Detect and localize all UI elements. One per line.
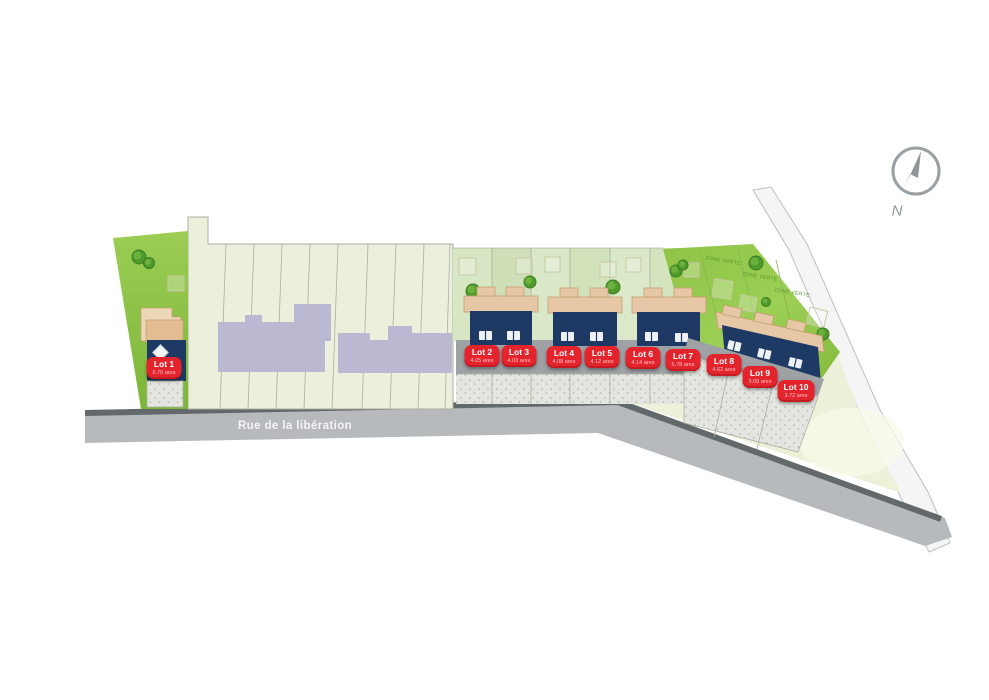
gravel-dots (147, 381, 183, 407)
house-pair-4-5 (548, 288, 622, 346)
house-pair-6-7 (632, 288, 706, 346)
lot-name: Lot 4 (553, 349, 576, 358)
lot-area: 4.14 ares (632, 360, 655, 367)
lot-area: 4.03 ares (508, 358, 531, 365)
tree-icon (749, 256, 763, 270)
lot-area: 4.62 ares (713, 367, 736, 374)
compass-needle-icon (904, 151, 921, 188)
existing-parcels (188, 217, 453, 409)
lot-area: 4.05 ares (471, 358, 494, 365)
lot-area: 4.08 ares (553, 359, 576, 366)
site-plan: Rue de la libération ZONE VERTE ZONE VER… (0, 0, 989, 700)
north-compass (893, 148, 939, 194)
lot-badge-6[interactable]: Lot 6 4.14 ares (626, 347, 661, 369)
window-icon (675, 333, 688, 342)
lot-name: Lot 10 (783, 383, 808, 392)
lot-name: Lot 1 (153, 360, 176, 369)
lot-badge-10[interactable]: Lot 10 3.72 ares (777, 380, 814, 402)
tree-icon (762, 298, 771, 307)
lot-name: Lot 6 (632, 350, 655, 359)
lot-area: 4.12 ares (591, 359, 614, 366)
lot-name: Lot 3 (508, 348, 531, 357)
lot-area: 6.70 ares (153, 370, 176, 377)
window-icon (645, 332, 658, 341)
terrace-outline (168, 276, 184, 291)
lot-badge-8[interactable]: Lot 8 4.62 ares (707, 354, 742, 376)
window-icon (590, 332, 603, 341)
lot-badge-2[interactable]: Lot 2 4.05 ares (465, 345, 500, 367)
lot-area: 5.78 ares (672, 362, 695, 369)
window-icon (507, 331, 520, 340)
lot-area: 3.09 ares (749, 379, 772, 386)
tree-icon (678, 260, 688, 270)
lot-badge-4[interactable]: Lot 4 4.08 ares (547, 346, 582, 368)
tree-icon (524, 276, 536, 288)
lot-name: Lot 8 (713, 357, 736, 366)
tree-icon (144, 258, 155, 269)
lot-badge-5[interactable]: Lot 5 4.12 ares (585, 346, 620, 368)
lot-badge-3[interactable]: Lot 3 4.03 ares (502, 345, 537, 367)
lot-1-parcel (113, 231, 188, 409)
lot-name: Lot 7 (672, 352, 695, 361)
lot-badge-1[interactable]: Lot 1 6.70 ares (147, 357, 182, 379)
window-icon (479, 331, 492, 340)
lot-area: 3.72 ares (783, 393, 808, 400)
lot-badge-7[interactable]: Lot 7 5.78 ares (666, 349, 701, 371)
lot-badge-9[interactable]: Lot 9 3.09 ares (743, 366, 778, 388)
lot-name: Lot 2 (471, 348, 494, 357)
lot-name: Lot 9 (749, 369, 772, 378)
new-house (470, 311, 532, 345)
driveway-tan (146, 320, 183, 342)
window-icon (561, 332, 574, 341)
lot-name: Lot 5 (591, 349, 614, 358)
house-pair-2-3 (464, 287, 538, 345)
existing-building (338, 326, 452, 373)
